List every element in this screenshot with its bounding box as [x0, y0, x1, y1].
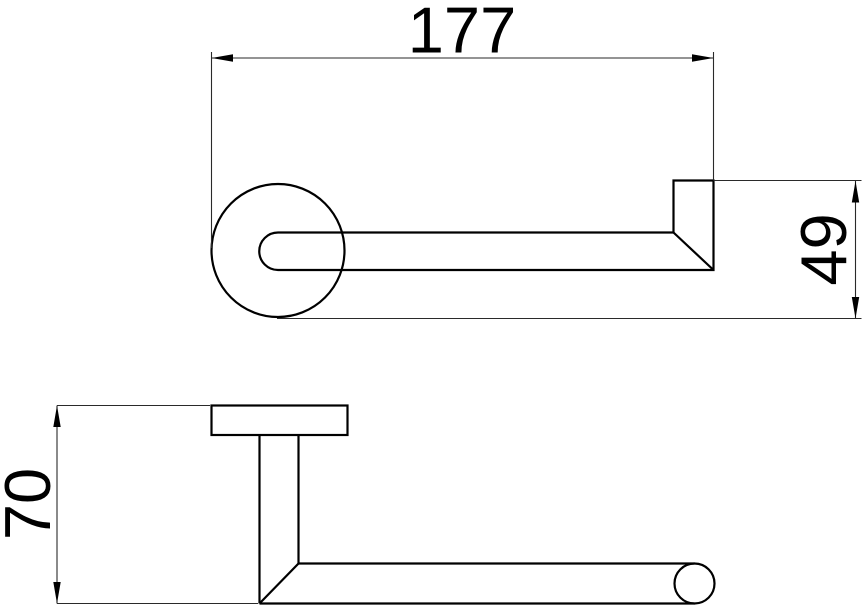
front-view [212, 181, 714, 318]
dimension-drawing: 177 49 70 [0, 0, 864, 610]
depth-arrow-bottom-icon [53, 582, 60, 604]
width-dimension-label: 177 [408, 0, 516, 67]
holder-arm-outline [259, 181, 713, 271]
technical-drawing-canvas: 177 49 70 [0, 0, 864, 610]
side-view [212, 406, 715, 604]
height-arrow-bottom-icon [852, 297, 859, 319]
post-bar-chamfer-line [260, 564, 299, 604]
bar-end-cap-circle [675, 564, 715, 604]
depth-arrow-top-icon [53, 406, 60, 428]
height-dimension: 49 [277, 181, 862, 319]
height-arrow-top-icon [852, 181, 859, 203]
width-dimension: 177 [212, 0, 714, 248]
wall-plate-rect [212, 406, 348, 436]
arm-bracket-chamfer-line [674, 233, 714, 271]
wall-rosette-circle [212, 184, 345, 317]
height-dimension-label: 49 [787, 213, 860, 285]
width-arrow-left-icon [212, 54, 234, 61]
depth-dimension-label: 70 [0, 468, 64, 540]
width-arrow-right-icon [692, 54, 714, 61]
